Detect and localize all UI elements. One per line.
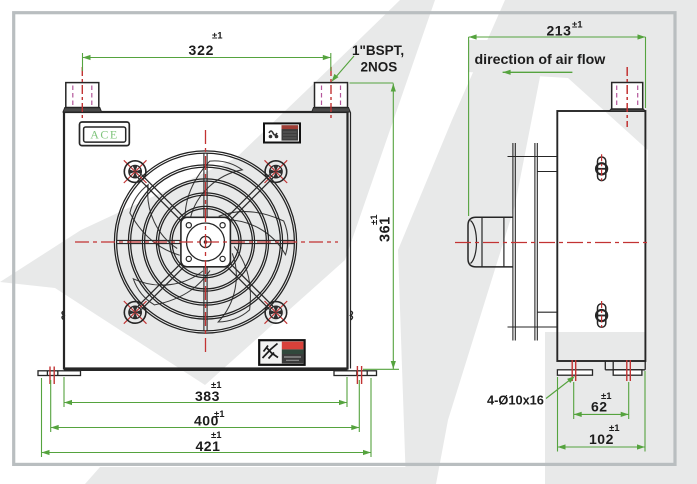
svg-text:±1: ±1: [609, 423, 620, 434]
svg-text:4-Ø10x16: 4-Ø10x16: [487, 393, 544, 408]
svg-text:322: 322: [189, 42, 215, 58]
svg-text:±1: ±1: [214, 409, 225, 420]
svg-text:±1: ±1: [211, 430, 222, 441]
svg-text:±1: ±1: [369, 214, 380, 225]
svg-text:ACE: ACE: [90, 128, 119, 142]
svg-text:±1: ±1: [212, 31, 223, 42]
svg-text:±1: ±1: [601, 391, 612, 402]
svg-text:direction of air flow: direction of air flow: [475, 52, 607, 68]
svg-text:213: 213: [547, 23, 572, 39]
svg-text:±1: ±1: [211, 380, 222, 391]
svg-text:2NOS: 2NOS: [361, 60, 398, 75]
svg-text:±1: ±1: [572, 20, 583, 31]
svg-text:1"BSPT,: 1"BSPT,: [352, 43, 404, 58]
